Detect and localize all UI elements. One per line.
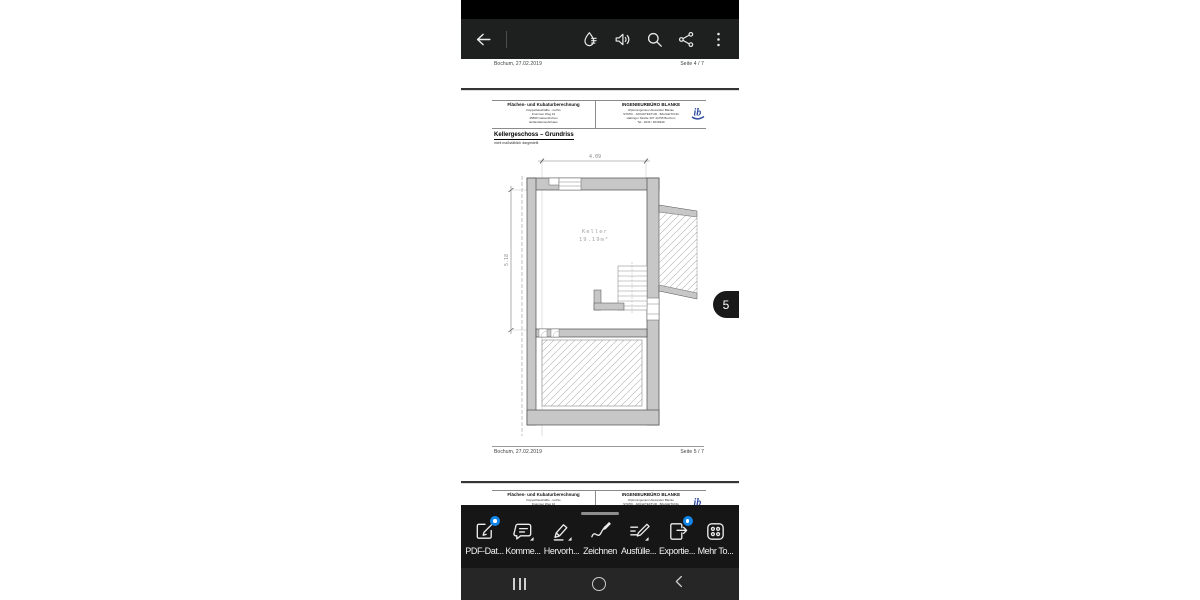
page5-footer-pagenum: Seite 5 / 7 [680, 449, 704, 455]
nav-back-button[interactable] [672, 574, 687, 594]
page5-footer: Bochum, 27.02.2019 Seite 5 / 7 [494, 449, 704, 455]
dimension-left: 5.18 [504, 186, 527, 334]
tool-fill-sign[interactable]: Ausfülle... [620, 520, 657, 556]
plan-annex [659, 205, 697, 299]
svg-text:ib: ib [694, 108, 702, 119]
share-icon [677, 30, 696, 49]
fill-sign-icon [627, 520, 650, 543]
page4-footer-city: Bochum, 27.02.2019 [494, 61, 542, 67]
tool-export[interactable]: Exportie... [659, 520, 696, 556]
tool-draw[interactable]: Zeichnen [582, 520, 619, 556]
page5-footer-city: Bochum, 27.02.2019 [494, 449, 542, 455]
pdf-viewport[interactable]: Bochum, 27.02.2019 Seite 4 / 7 Flächen- … [461, 59, 739, 568]
dimension-height-label: 5.18 [504, 254, 510, 266]
page-separator [461, 481, 739, 483]
plan-hatched-room [542, 340, 642, 406]
toolbar-divider [506, 31, 507, 48]
liquid-mode-button[interactable] [581, 30, 600, 49]
android-nav-bar [461, 568, 739, 600]
overflow-menu-button[interactable] [709, 30, 728, 49]
back-arrow-icon [474, 30, 493, 49]
kebab-menu-icon [709, 30, 728, 49]
dimension-top: 4.09 [538, 154, 650, 164]
room-label: Keller [582, 229, 608, 235]
status-bar [461, 0, 739, 19]
premium-badge [683, 516, 693, 526]
page4-footer: Bochum, 27.02.2019 Seite 4 / 7 [494, 61, 704, 67]
more-tools-icon [704, 520, 727, 543]
tool-comment[interactable]: Komme... [505, 520, 542, 556]
bottom-tool-sheet: PDF-Dat... Komme... Hervorh... [461, 505, 739, 568]
tool-edit-pdf[interactable]: PDF-Dat... [466, 520, 503, 556]
comment-icon [512, 520, 535, 543]
floor-plan-drawing: 4.09 5.18 [494, 148, 709, 438]
highlight-icon [550, 520, 573, 543]
plan-openings [539, 178, 659, 337]
nav-back-icon [672, 574, 687, 589]
page-scroll-badge-number: 5 [723, 298, 730, 312]
page5-letterhead: Flächen- und Kubaturberechnung Doppelhau… [492, 100, 706, 129]
search-icon [645, 30, 664, 49]
draw-icon [589, 520, 612, 543]
plan-stairs [594, 262, 647, 314]
page-separator [461, 88, 739, 90]
dimension-width-label: 4.09 [589, 154, 601, 160]
tool-highlight[interactable]: Hervorh... [543, 520, 580, 556]
tool-more-tools[interactable]: Mehr To... [697, 520, 734, 556]
liquid-mode-icon [581, 30, 600, 49]
back-button[interactable] [474, 30, 493, 49]
drawing-title: Kellergeschoss – Grundriss [494, 132, 574, 140]
search-button[interactable] [645, 30, 664, 49]
recents-button[interactable] [513, 578, 526, 590]
speaker-icon [613, 30, 632, 49]
drag-handle[interactable] [581, 512, 619, 515]
read-aloud-button[interactable] [613, 30, 632, 49]
app-toolbar [461, 19, 739, 59]
home-button[interactable] [592, 577, 606, 591]
drawing-subtitle: nicht maßstäblich dargestellt [494, 141, 538, 145]
share-button[interactable] [677, 30, 696, 49]
room-area-label: 19.19m² [579, 236, 609, 243]
firm-logo: ib [689, 104, 706, 126]
page5-footer-rule [492, 446, 704, 447]
page-scroll-badge[interactable]: 5 [713, 291, 739, 318]
premium-badge [490, 516, 500, 526]
phone-screenshot: Bochum, 27.02.2019 Seite 4 / 7 Flächen- … [461, 0, 739, 600]
page4-footer-pagenum: Seite 4 / 7 [680, 61, 704, 67]
